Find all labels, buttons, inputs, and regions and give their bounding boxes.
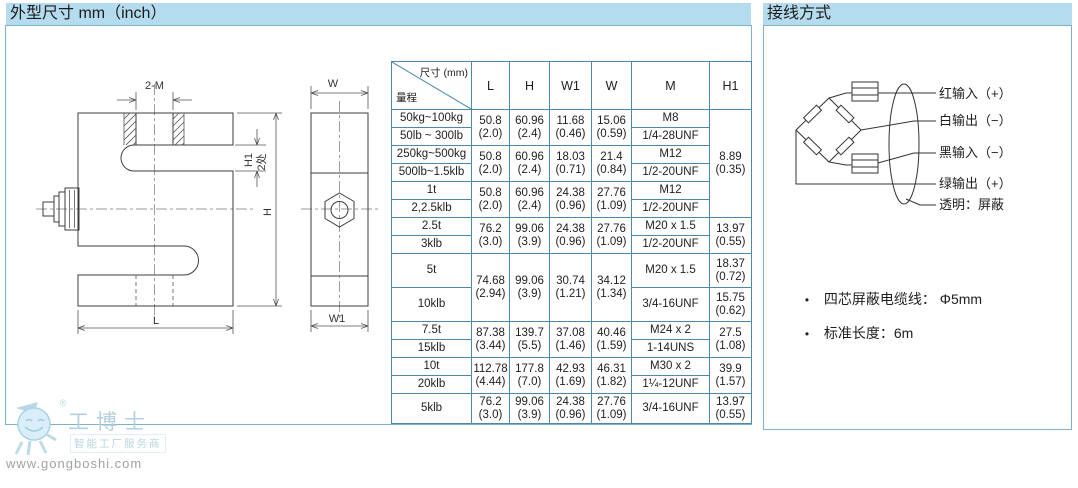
table-cell: 177.8(7.0)	[510, 358, 550, 394]
wire-label-white-output: 白输出（−）	[939, 113, 1012, 129]
table-cell: M12	[632, 146, 710, 164]
table-cell: 18.37(0.72)	[710, 254, 752, 288]
table-cell: 50.8(2.0)	[472, 110, 510, 146]
table-cell: 10klb	[392, 288, 472, 322]
table-row: 7.5t87.38(3.44)139.7(5.5)37.08(1.46)40.4…	[392, 322, 752, 340]
compensation-resistors-top	[829, 82, 878, 101]
registered-mark: ®	[60, 398, 67, 408]
corner-label-capacity: 量程	[396, 90, 417, 105]
bullet-icon: •	[794, 327, 820, 341]
table-cell: 3/4-16UNF	[632, 288, 710, 322]
dimensions-table: 尺寸 (mm) 量程 L H W1 W M H1 50kg~100kg50.8(…	[391, 61, 752, 424]
table-cell: M20 x 1.5	[632, 254, 710, 288]
cable-bundle	[889, 84, 919, 204]
table-row: 1t50.8(2.0)60.96(2.4)24.38(0.96)27.76(1.…	[392, 182, 752, 200]
watermark-url: www.gongboshi.com	[6, 456, 142, 471]
table-cell: 5klb	[392, 394, 472, 424]
table-cell: 24.38(0.96)	[550, 182, 592, 218]
dim-w-label: W	[328, 78, 339, 90]
table-row: 5klb76.2(3.0)99.06(3.9)24.38(0.96)27.76(…	[392, 394, 752, 424]
table-row: 250kg~500kg50.8(2.0)60.96(2.4)18.03(0.71…	[392, 146, 752, 164]
table-cell: 5t	[392, 254, 472, 288]
table-cell: 76.2(3.0)	[472, 218, 510, 254]
table-cell: 27.76(1.09)	[592, 182, 632, 218]
wiring-box: 红输入（+） 白输出（−） 黑输入（−） 绿输出（+） 透明：屏蔽 • 四芯屏蔽…	[763, 25, 1072, 430]
table-cell: 18.03(0.71)	[550, 146, 592, 182]
table-cell: 13.97(0.55)	[710, 394, 752, 424]
note-cable: • 四芯屏蔽电缆线： Φ5mm	[794, 289, 982, 309]
table-cell: 99.06(3.9)	[510, 394, 550, 424]
table-cell: 27.76(1.09)	[592, 218, 632, 254]
table-cell: M24 x 2	[632, 322, 710, 340]
dim-H1: H1 2处	[235, 129, 268, 187]
table-cell: 21.4(0.84)	[592, 146, 632, 182]
table-cell: 30.74(1.21)	[550, 254, 592, 322]
table-cell: 500lb~1.5klb	[392, 164, 472, 182]
table-cell: 99.06(3.9)	[510, 218, 550, 254]
watermark-brand: 工博士	[68, 406, 152, 436]
wiring-title: 接线方式	[763, 3, 1072, 25]
table-cell: 1t	[392, 182, 472, 200]
table-cell: 60.96(2.4)	[510, 110, 550, 146]
table-cell: 99.06(3.9)	[510, 254, 550, 322]
dim-h1-label: H1	[243, 153, 255, 167]
col-header-W: W	[592, 62, 632, 110]
dim-2m-label: 2-M	[145, 80, 164, 92]
table-cell: 40.46(1.59)	[592, 322, 632, 358]
table-cell: 50.8(2.0)	[472, 146, 510, 182]
table-row: 5t74.68(2.94)99.06(3.9)30.74(1.21)34.12(…	[392, 254, 752, 288]
table-cell: 1/2-20UNF	[632, 164, 710, 182]
wheatstone-bridge-diagram	[764, 26, 1071, 429]
table-cell: 46.31(1.82)	[592, 358, 632, 394]
col-header-L: L	[472, 62, 510, 110]
table-cell: 76.2(3.0)	[472, 394, 510, 424]
dim-2places-label: 2处	[255, 153, 268, 170]
mascot-icon	[8, 400, 62, 458]
dim-w1-label: W1	[329, 313, 346, 325]
watermark: ® 工博士 智能工厂服务商 www.gongboshi.com	[4, 398, 204, 486]
table-cell: 1/4-28UNF	[632, 128, 710, 146]
table-row: 10t112.78(4.44)177.8(7.0)42.93(1.69)46.3…	[392, 358, 752, 376]
wire-label-shield: 透明：屏蔽	[939, 197, 1004, 213]
table-cell: 27.76(1.09)	[592, 394, 632, 424]
table-cell: 2.5t	[392, 218, 472, 236]
dimensions-title: 外型尺寸 mm（inch）	[6, 3, 751, 25]
table-cell: 37.08(1.46)	[550, 322, 592, 358]
col-header-W1: W1	[550, 62, 592, 110]
table-row: 50kg~100kg50.8(2.0)60.96(2.4)11.68(0.46)…	[392, 110, 752, 128]
table-cell: 20klb	[392, 376, 472, 394]
table-cell: 42.93(1.69)	[550, 358, 592, 394]
table-cell: 3/4-16UNF	[632, 394, 710, 424]
col-header-H1: H1	[710, 62, 752, 110]
table-cell: 74.68(2.94)	[472, 254, 510, 322]
centerlines	[36, 84, 378, 320]
table-cell: 8.89(0.35)	[710, 110, 752, 218]
table-cell: 1-14UNS	[632, 340, 710, 358]
table-cell: 60.96(2.4)	[510, 146, 550, 182]
table-cell: 112.78(4.44)	[472, 358, 510, 394]
corner-label-size: 尺寸 (mm)	[420, 65, 468, 80]
top-thread-hole	[124, 113, 184, 145]
table-cell: 7.5t	[392, 322, 472, 340]
bridge-diamond	[796, 98, 861, 162]
table-cell: M30 x 2	[632, 358, 710, 376]
dim-l-label: L	[153, 315, 159, 327]
note-cable-text: 四芯屏蔽电缆线： Φ5mm	[824, 291, 982, 307]
note-length: • 标准长度：6m	[794, 323, 913, 343]
table-cell: 1/2-20UNF	[632, 236, 710, 254]
wire-label-green-output: 绿输出（+）	[939, 176, 1012, 192]
bullet-icon: •	[794, 293, 820, 307]
note-length-text: 标准长度：6m	[824, 325, 913, 341]
table-cell: 1/2-20UNF	[632, 200, 710, 218]
table-cell: 15.75(0.62)	[710, 288, 752, 322]
table-cell: 10t	[392, 358, 472, 376]
dim-H: H	[237, 113, 282, 306]
load-cell-drawing: 2-M H1 2处 H L W W1	[6, 26, 391, 424]
table-cell: 50.8(2.0)	[472, 182, 510, 218]
table-cell: 11.68(0.46)	[550, 110, 592, 146]
table-cell: 13.97(0.55)	[710, 218, 752, 254]
dim-h-label: H	[262, 208, 274, 216]
table-header-row: 尺寸 (mm) 量程 L H W1 W M H1	[392, 62, 752, 110]
table-cell: 2,2.5klb	[392, 200, 472, 218]
table-cell: 39.9(1.57)	[710, 358, 752, 394]
table-cell: 1¼-12UNF	[632, 376, 710, 394]
table-cell: 250kg~500kg	[392, 146, 472, 164]
col-header-H: H	[510, 62, 550, 110]
table-cell: 139.7(5.5)	[510, 322, 550, 358]
table-cell: M8	[632, 110, 710, 128]
table-cell: 15.06(0.59)	[592, 110, 632, 146]
table-cell: 15klb	[392, 340, 472, 358]
table-cell: 60.96(2.4)	[510, 182, 550, 218]
col-header-M: M	[632, 62, 710, 110]
compensation-resistors-bottom	[829, 154, 878, 173]
dimensions-box: 2-M H1 2处 H L W W1	[5, 25, 752, 425]
watermark-slogan: 智能工厂服务商	[70, 434, 166, 453]
dim-L: L	[78, 310, 233, 334]
table-cell: M12	[632, 182, 710, 200]
dim-W1: W1	[311, 310, 368, 332]
table-cell: 24.38(0.96)	[550, 394, 592, 424]
table-cell: 27.5(1.08)	[710, 322, 752, 358]
table-cell: 34.12(1.34)	[592, 254, 632, 322]
table-cell: 3klb	[392, 236, 472, 254]
table-cell: M20 x 1.5	[632, 218, 710, 236]
table-cell: 50lb ~ 300lb	[392, 128, 472, 146]
front-view-outline	[78, 113, 233, 306]
wire-label-black-input: 黑输入（−）	[939, 145, 1012, 161]
table-corner-cell: 尺寸 (mm) 量程	[392, 62, 472, 110]
table-row: 2.5t76.2(3.0)99.06(3.9)24.38(0.96)27.76(…	[392, 218, 752, 236]
table-cell: 87.38(3.44)	[472, 322, 510, 358]
table-cell: 24.38(0.96)	[550, 218, 592, 254]
table-cell: 50kg~100kg	[392, 110, 472, 128]
wire-label-red-input: 红输入（+）	[939, 86, 1012, 102]
